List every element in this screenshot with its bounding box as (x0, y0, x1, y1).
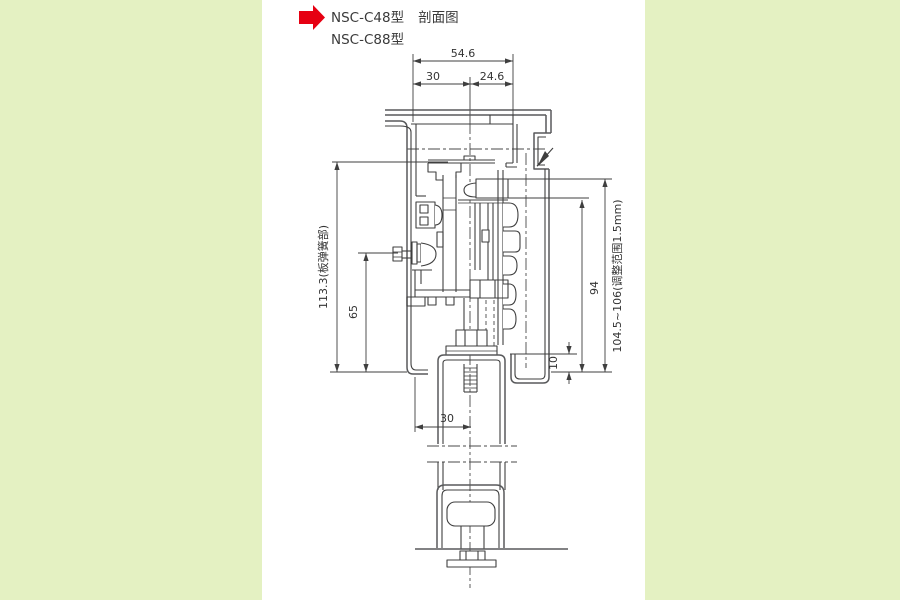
dim-right-lip: 10 (547, 342, 572, 384)
top-tab (464, 156, 475, 160)
leaf-spring-column (437, 175, 456, 292)
guide-block (447, 502, 495, 526)
door-hanger-bracket (438, 355, 505, 444)
section-drawing: 54.6 30 24.6 113.3(板弹簧部) (0, 0, 900, 600)
hex-nut (456, 330, 487, 346)
floor-guide-channel (437, 485, 504, 549)
dim-label-104-5-106: 104.5~106(调整范围1.5mm) (610, 199, 624, 352)
dim-top-total: 54.6 (413, 47, 513, 64)
dim-bottom-offset: 30 (415, 412, 471, 430)
side-bracket (416, 202, 442, 228)
dim-label-54-6: 54.6 (451, 47, 476, 60)
rollers (503, 203, 520, 329)
door-panel (415, 446, 568, 567)
floor-guide-base (447, 560, 496, 567)
dim-label-30-top: 30 (426, 70, 440, 83)
dim-label-94: 94 (588, 281, 601, 295)
threaded-rod (464, 364, 477, 392)
dim-left-inner: 65 (347, 253, 369, 372)
carriage-mechanism (393, 156, 520, 356)
dim-label-113-3: 113.3(板弹簧部) (316, 225, 330, 309)
dim-right-inner: 94 (579, 200, 601, 372)
dim-left-overall: 113.3(板弹簧部) (316, 162, 340, 372)
dim-label-10: 10 (547, 356, 560, 370)
dim-label-24-6: 24.6 (480, 70, 505, 83)
dim-right-overall: 104.5~106(调整范围1.5mm) (602, 179, 624, 372)
page: NSC-C48型剖面图 NSC-C88型 (0, 0, 900, 600)
dim-label-65: 65 (347, 305, 360, 319)
washer (446, 346, 497, 355)
floor-nut (460, 551, 485, 560)
dim-top-split: 30 24.6 (413, 70, 513, 87)
hanger-rod (446, 298, 497, 356)
adjust-bolt (393, 242, 436, 266)
dim-label-30-bottom: 30 (440, 412, 454, 425)
